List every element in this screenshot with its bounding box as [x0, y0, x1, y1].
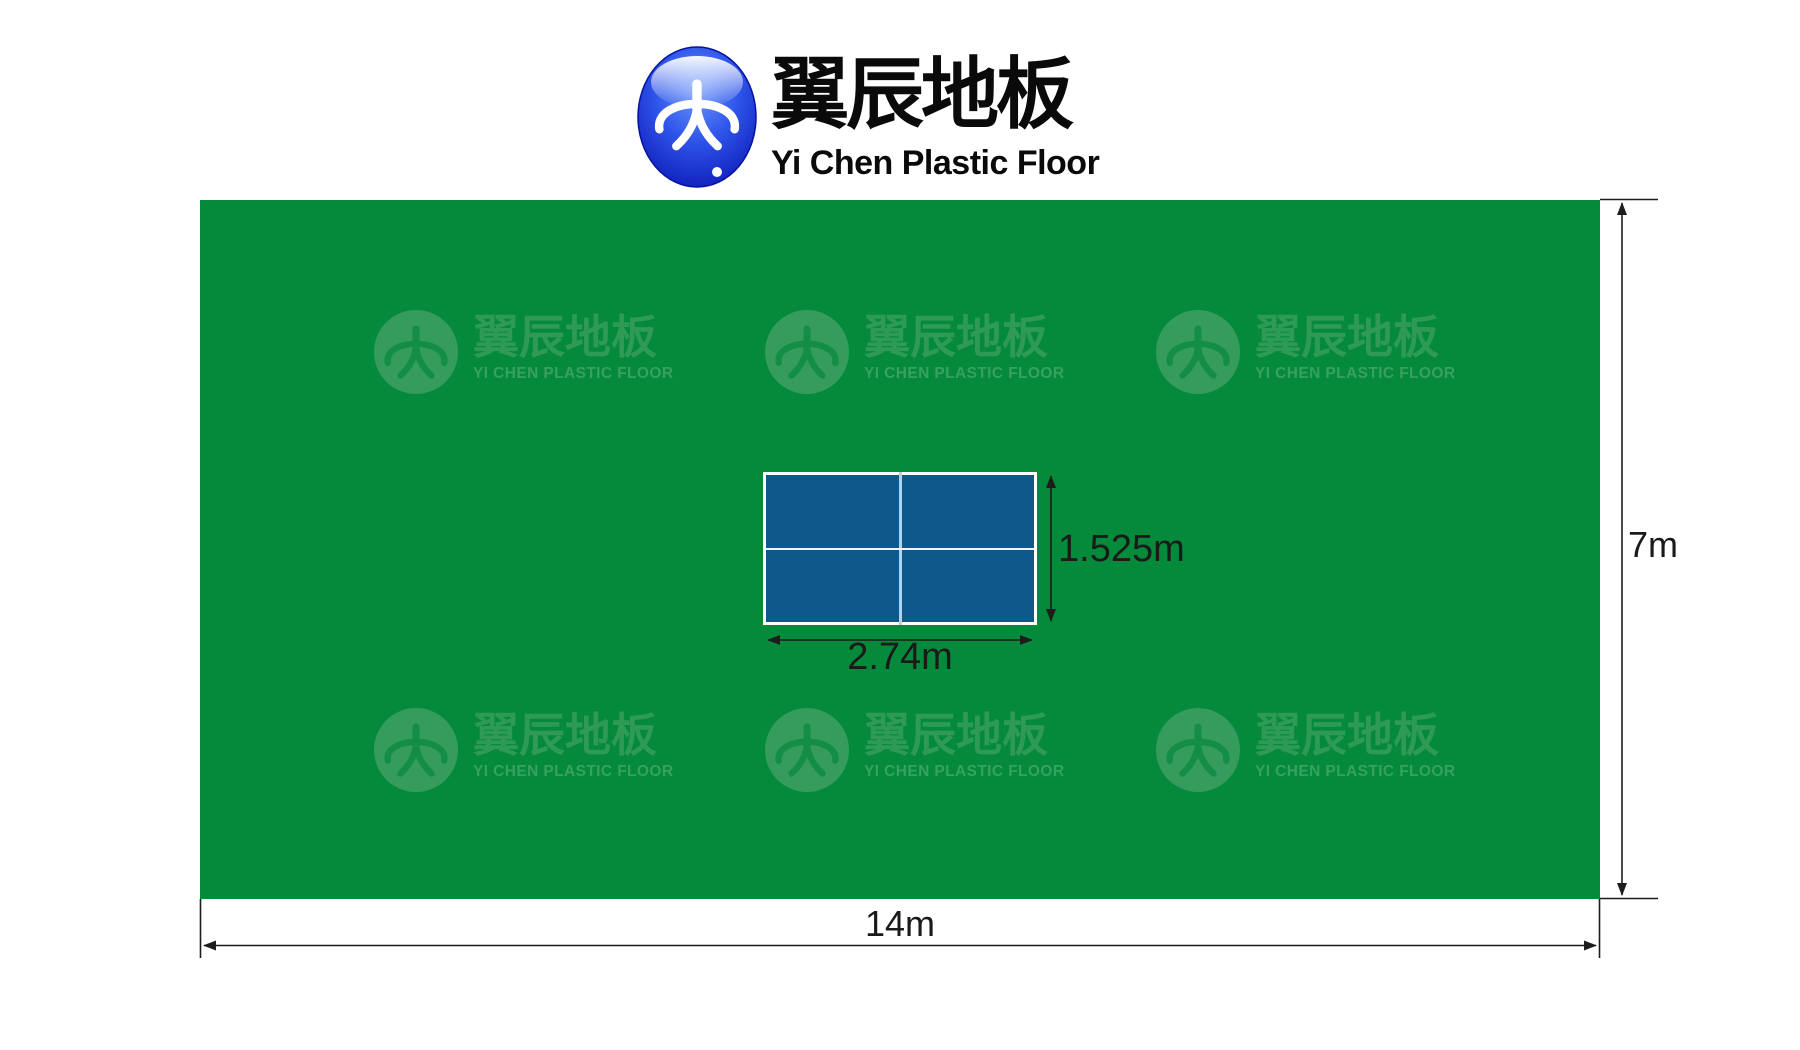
watermark-name-en: YI CHEN PLASTIC FLOOR: [864, 763, 1064, 780]
watermark: 翼辰地板 YI CHEN PLASTIC FLOOR: [374, 310, 673, 394]
watermark-logo-icon: [765, 310, 849, 394]
watermark-name-cn: 翼辰地板: [473, 312, 673, 362]
brand-text-block: 翼辰地板 Yi Chen Plastic Floor: [771, 48, 1099, 182]
watermark-text: 翼辰地板 YI CHEN PLASTIC FLOOR: [864, 708, 1064, 780]
watermark: 翼辰地板 YI CHEN PLASTIC FLOOR: [765, 310, 1064, 394]
watermark-name-en: YI CHEN PLASTIC FLOOR: [473, 763, 673, 780]
floor-width-label: 14m: [830, 906, 970, 942]
watermark-logo-icon: [374, 708, 458, 792]
watermark-name-cn: 翼辰地板: [1255, 312, 1455, 362]
floor-area: 翼辰地板 YI CHEN PLASTIC FLOOR 翼辰地板 YI CHEN …: [200, 200, 1600, 899]
brand-name-cn: 翼辰地板: [771, 48, 1099, 140]
table-tennis-table: [763, 472, 1037, 625]
watermark-name-en: YI CHEN PLASTIC FLOOR: [864, 365, 1064, 382]
brand-name-en: Yi Chen Plastic Floor: [771, 144, 1099, 182]
watermark: 翼辰地板 YI CHEN PLASTIC FLOOR: [374, 708, 673, 792]
watermark-name-cn: 翼辰地板: [473, 710, 673, 760]
watermark-text: 翼辰地板 YI CHEN PLASTIC FLOOR: [1255, 708, 1455, 780]
watermark-name-en: YI CHEN PLASTIC FLOOR: [1255, 365, 1455, 382]
brand-logo-icon: [637, 46, 757, 188]
watermark-text: 翼辰地板 YI CHEN PLASTIC FLOOR: [864, 310, 1064, 382]
watermark-name-en: YI CHEN PLASTIC FLOOR: [473, 365, 673, 382]
table-width-label: 2.74m: [820, 638, 980, 676]
diagram-canvas: 翼辰地板 Yi Chen Plastic Floor 翼辰地板 YI CHEN …: [0, 0, 1800, 1050]
watermark-name-cn: 翼辰地板: [864, 710, 1064, 760]
watermark-text: 翼辰地板 YI CHEN PLASTIC FLOOR: [473, 708, 673, 780]
watermark-logo-icon: [1156, 708, 1240, 792]
watermark: 翼辰地板 YI CHEN PLASTIC FLOOR: [1156, 310, 1455, 394]
table-center-line: [766, 548, 1034, 550]
watermark: 翼辰地板 YI CHEN PLASTIC FLOOR: [765, 708, 1064, 792]
watermark-name-cn: 翼辰地板: [864, 312, 1064, 362]
watermark-text: 翼辰地板 YI CHEN PLASTIC FLOOR: [1255, 310, 1455, 382]
watermark-name-en: YI CHEN PLASTIC FLOOR: [1255, 763, 1455, 780]
watermark-name-cn: 翼辰地板: [1255, 710, 1455, 760]
table-height-label: 1.525m: [1058, 530, 1185, 568]
watermark-text: 翼辰地板 YI CHEN PLASTIC FLOOR: [473, 310, 673, 382]
watermark-logo-icon: [1156, 310, 1240, 394]
floor-height-label: 7m: [1628, 527, 1678, 563]
watermark-logo-icon: [765, 708, 849, 792]
watermark: 翼辰地板 YI CHEN PLASTIC FLOOR: [1156, 708, 1455, 792]
watermark-logo-icon: [374, 310, 458, 394]
